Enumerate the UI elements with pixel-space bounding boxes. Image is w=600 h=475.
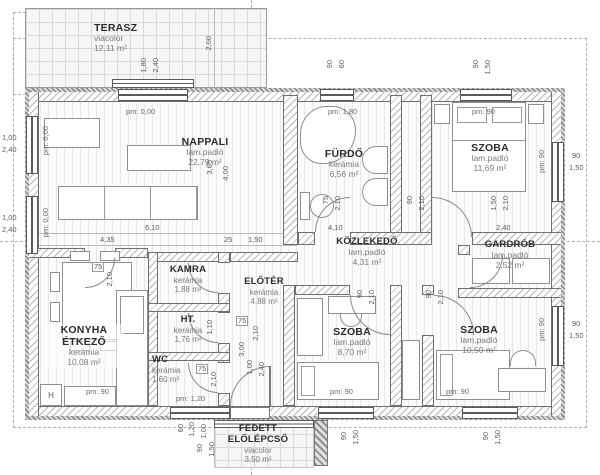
dim-konyha-door-75: 75: [92, 262, 104, 272]
bed-blanket-line: [452, 140, 526, 141]
lepcso-area: 3,50 m²: [244, 455, 271, 464]
fridge: H: [40, 384, 62, 406]
dim-eloter-300: 3,00: [238, 342, 246, 357]
nightstand: [528, 104, 544, 124]
terrace-door: [118, 89, 188, 101]
dim-nappali-25: 25: [224, 236, 232, 244]
sofa: [58, 186, 198, 220]
dim-bmwin-150: 1,50: [352, 430, 360, 445]
dim-terrace-door-240: 2,40: [152, 58, 160, 73]
dim-left2-240: 2,40: [2, 226, 17, 234]
floor-plan: TERASZ viacolor 12,11 m²: [0, 0, 600, 475]
dim-terrace-door-180: 1,80: [140, 58, 148, 73]
wc-floor: kerámia: [152, 366, 180, 375]
hall-cabinet: [402, 340, 420, 400]
furdo-pm: pm: 1,80: [328, 108, 357, 116]
szoba-bm-area: 8,70 m²: [338, 348, 367, 358]
kamra-label: KAMRA kerámia 1,88 m²: [152, 265, 224, 294]
kamra-name: KAMRA: [170, 265, 206, 276]
eloter-label: ELŐTÉR kerámia 4,88 m²: [232, 277, 296, 306]
ht-name: HT.: [181, 315, 196, 326]
dim-brwin-150: 1,50: [494, 430, 502, 445]
lepcso-label: FEDETT ELŐLÉPCSŐ viacolor 3,50 m²: [214, 424, 302, 464]
dim-terrace-depth-200: 2,00: [205, 36, 213, 51]
dim-nappali-365: 3,65: [206, 160, 214, 175]
dim-tr-door-210: 2,10: [418, 196, 426, 211]
gardrob-area: 2,52 m²: [496, 261, 525, 271]
dim-eloter-door-210: 2,10: [252, 326, 260, 341]
wall-szoba-bm-top: [295, 285, 350, 295]
ht-floor: kerámia: [174, 326, 202, 335]
dim-nappali-150: 1,50: [248, 236, 263, 244]
window-konyha: [170, 407, 230, 419]
dim-line-nappali-a: [39, 233, 283, 234]
dim-brwin-90: 90: [482, 432, 490, 440]
wall-kamra-eloter-d: [218, 393, 230, 406]
dim-right1-90: 90: [572, 152, 580, 160]
entrance-door-opening: [230, 407, 270, 419]
window-right-2: [552, 306, 564, 366]
window-left-2: [26, 196, 38, 254]
wall-kamra-ht: [148, 303, 230, 312]
furdo-label: FÜRDŐ kerámia 6,56 m²: [300, 148, 388, 180]
nappali-pm: pm: 0,00: [126, 108, 155, 116]
furdo-area: 6,56 m²: [330, 170, 359, 180]
dim-br-door-210: 2,10: [437, 290, 445, 305]
dim-tr-door-90: 90: [406, 196, 414, 204]
window-szoba-br: [462, 407, 518, 419]
window-furdo: [320, 89, 354, 101]
dim-tr-150: 1,50: [490, 196, 498, 211]
toilet-tank: [300, 192, 310, 220]
dim-tr-210: 2,10: [502, 196, 510, 211]
nightstand: [434, 104, 450, 124]
wc-area: 1,60 m²: [152, 375, 179, 384]
dim-ht-110: 1,10: [206, 320, 214, 335]
window-szoba-bm: [318, 407, 374, 419]
wall-furdo-right: [390, 95, 402, 245]
dim-br-door-90: 90: [425, 290, 433, 298]
wall-szoba-tr-left: [420, 95, 432, 245]
konyha-label: KONYHA ÉTKEZŐ kerámia 10,08 m²: [44, 324, 124, 368]
szoba-tr-label: SZOBA lam.padló 11,69 m²: [446, 142, 534, 174]
dim-konyha-door-210: 2,10: [106, 272, 114, 287]
dim-gardrob-240: 2,40: [496, 224, 511, 232]
kamra-area: 1,88 m²: [174, 285, 201, 294]
pm-right-lower: pm: 90: [538, 318, 546, 341]
entrance-door-leaf: [269, 366, 271, 406]
insulation-right: [561, 88, 565, 420]
lepcso-name2: ELŐLÉPCSŐ: [228, 435, 288, 446]
dim-bmwin-90: 90: [340, 432, 348, 440]
dim-window-tr-90: 90: [472, 60, 480, 68]
pillow: [301, 366, 315, 396]
ht-area: 1,76 m²: [174, 335, 201, 344]
dim-entrance-240: 2,40: [258, 362, 266, 377]
kozlekedo-label: KÖZLEKEDŐ lam.padló 4,31 m²: [312, 237, 422, 267]
eloter-area: 4,88 m²: [250, 297, 277, 306]
terrace-step: [112, 79, 194, 88]
wall-gardrob-left: [458, 245, 470, 255]
dim-right2-90: 90: [572, 320, 580, 328]
terrace-deck: [25, 8, 267, 88]
window-right-1: [552, 142, 564, 202]
dim-wc-door-210: 2,10: [210, 372, 218, 387]
dim-nappali-400: 4,00: [222, 166, 230, 181]
wall-eloter-top: [230, 252, 298, 262]
dim-porch-60: 60: [177, 424, 185, 432]
pm-left-lower: pm: 0,00: [42, 208, 50, 237]
terasz-area: 12,11 m²: [94, 44, 127, 54]
szoba-br-pm: pm: 90: [446, 388, 469, 396]
porch-side-wall: [314, 420, 328, 466]
szoba-br-area: 10,50 m²: [462, 346, 496, 356]
desk: [498, 368, 546, 392]
dim-kozlekedo-410: 4,10: [328, 224, 343, 232]
dim-porch-120: 1,20: [188, 422, 196, 437]
kozlekedo-area: 4,31 m²: [353, 258, 382, 268]
fridge-label: H: [48, 391, 54, 400]
dim-porch-100: 1,00: [200, 424, 208, 439]
wc-name: WC: [152, 355, 168, 366]
pillow: [492, 107, 522, 123]
dim-left1-240: 2,40: [2, 146, 17, 154]
wc-pm: pm: 1,20: [176, 395, 205, 403]
dim-nappali-435: 4,35: [100, 236, 115, 244]
wall-gardrob-bottom: [458, 288, 565, 298]
konyha-area: 10,08 m²: [67, 358, 101, 368]
dim-right2-150: 1,50: [569, 332, 584, 340]
chair: [50, 272, 60, 292]
chair: [50, 302, 60, 322]
dim-line-nappali-b: [39, 245, 297, 246]
eloter-name: ELŐTÉR: [244, 277, 284, 288]
window-left-1: [26, 116, 38, 174]
wall-kamra-eloter-a: [218, 252, 230, 263]
pm-right-upper: pm: 90: [538, 150, 546, 173]
szoba-tr-pm: pm: 90: [472, 108, 495, 116]
dim-nappali-610: 6,10: [145, 224, 160, 232]
kamra-floor: kerámia: [174, 276, 202, 285]
dim-window-furdo-60: 60: [338, 60, 346, 68]
dim-bm-door-90: 90: [356, 290, 364, 298]
dim-bm-door-210: 2,10: [368, 290, 376, 305]
dim-window-furdo-90: 90: [326, 60, 334, 68]
szoba-tr-area: 11,69 m²: [474, 164, 507, 174]
dim-line-terrace: [214, 8, 215, 88]
szoba-br-label: SZOBA lam.padló 10,50 m²: [436, 324, 522, 356]
dim-entrance-100: 1,00: [246, 360, 254, 375]
dim-left2-100: 1,00: [2, 214, 17, 222]
lepcso-floor: viacolor: [244, 446, 272, 455]
dim-left1-100: 1,00: [2, 134, 17, 142]
eloter-floor: kerámia: [250, 288, 278, 297]
wall-nappali-furdo: [283, 95, 298, 245]
konyha-name: KONYHA: [61, 324, 108, 336]
szoba-bm-pm: pm: 90: [330, 388, 353, 396]
szoba-bm-label: SZOBA lam.padló 8,70 m²: [308, 326, 396, 358]
dim-window-tr-150: 1,50: [484, 60, 492, 75]
dim-right1-150: 1,50: [569, 164, 584, 172]
gardrob-label: GARDRÓB lam.padló 2,52 m²: [470, 240, 550, 270]
sink: [362, 178, 388, 206]
konyha-pm: pm: 90: [86, 388, 109, 396]
dim-furdo-door-210: 2,10: [334, 196, 342, 211]
terasz-label: TERASZ viacolor 12,11 m²: [94, 22, 137, 54]
dim-wc-door-75: 75: [196, 364, 208, 374]
dim-kwin-90: 90: [196, 444, 204, 452]
dim-eloter-door-75: 75: [236, 316, 248, 326]
dim-furdo-door-75: 75: [322, 196, 330, 204]
wall-szoba-br-left-b: [422, 335, 434, 406]
pm-left-upper: pm: 0,00: [42, 126, 50, 155]
armchair: [44, 118, 100, 148]
window-szoba-tr: [460, 89, 512, 101]
